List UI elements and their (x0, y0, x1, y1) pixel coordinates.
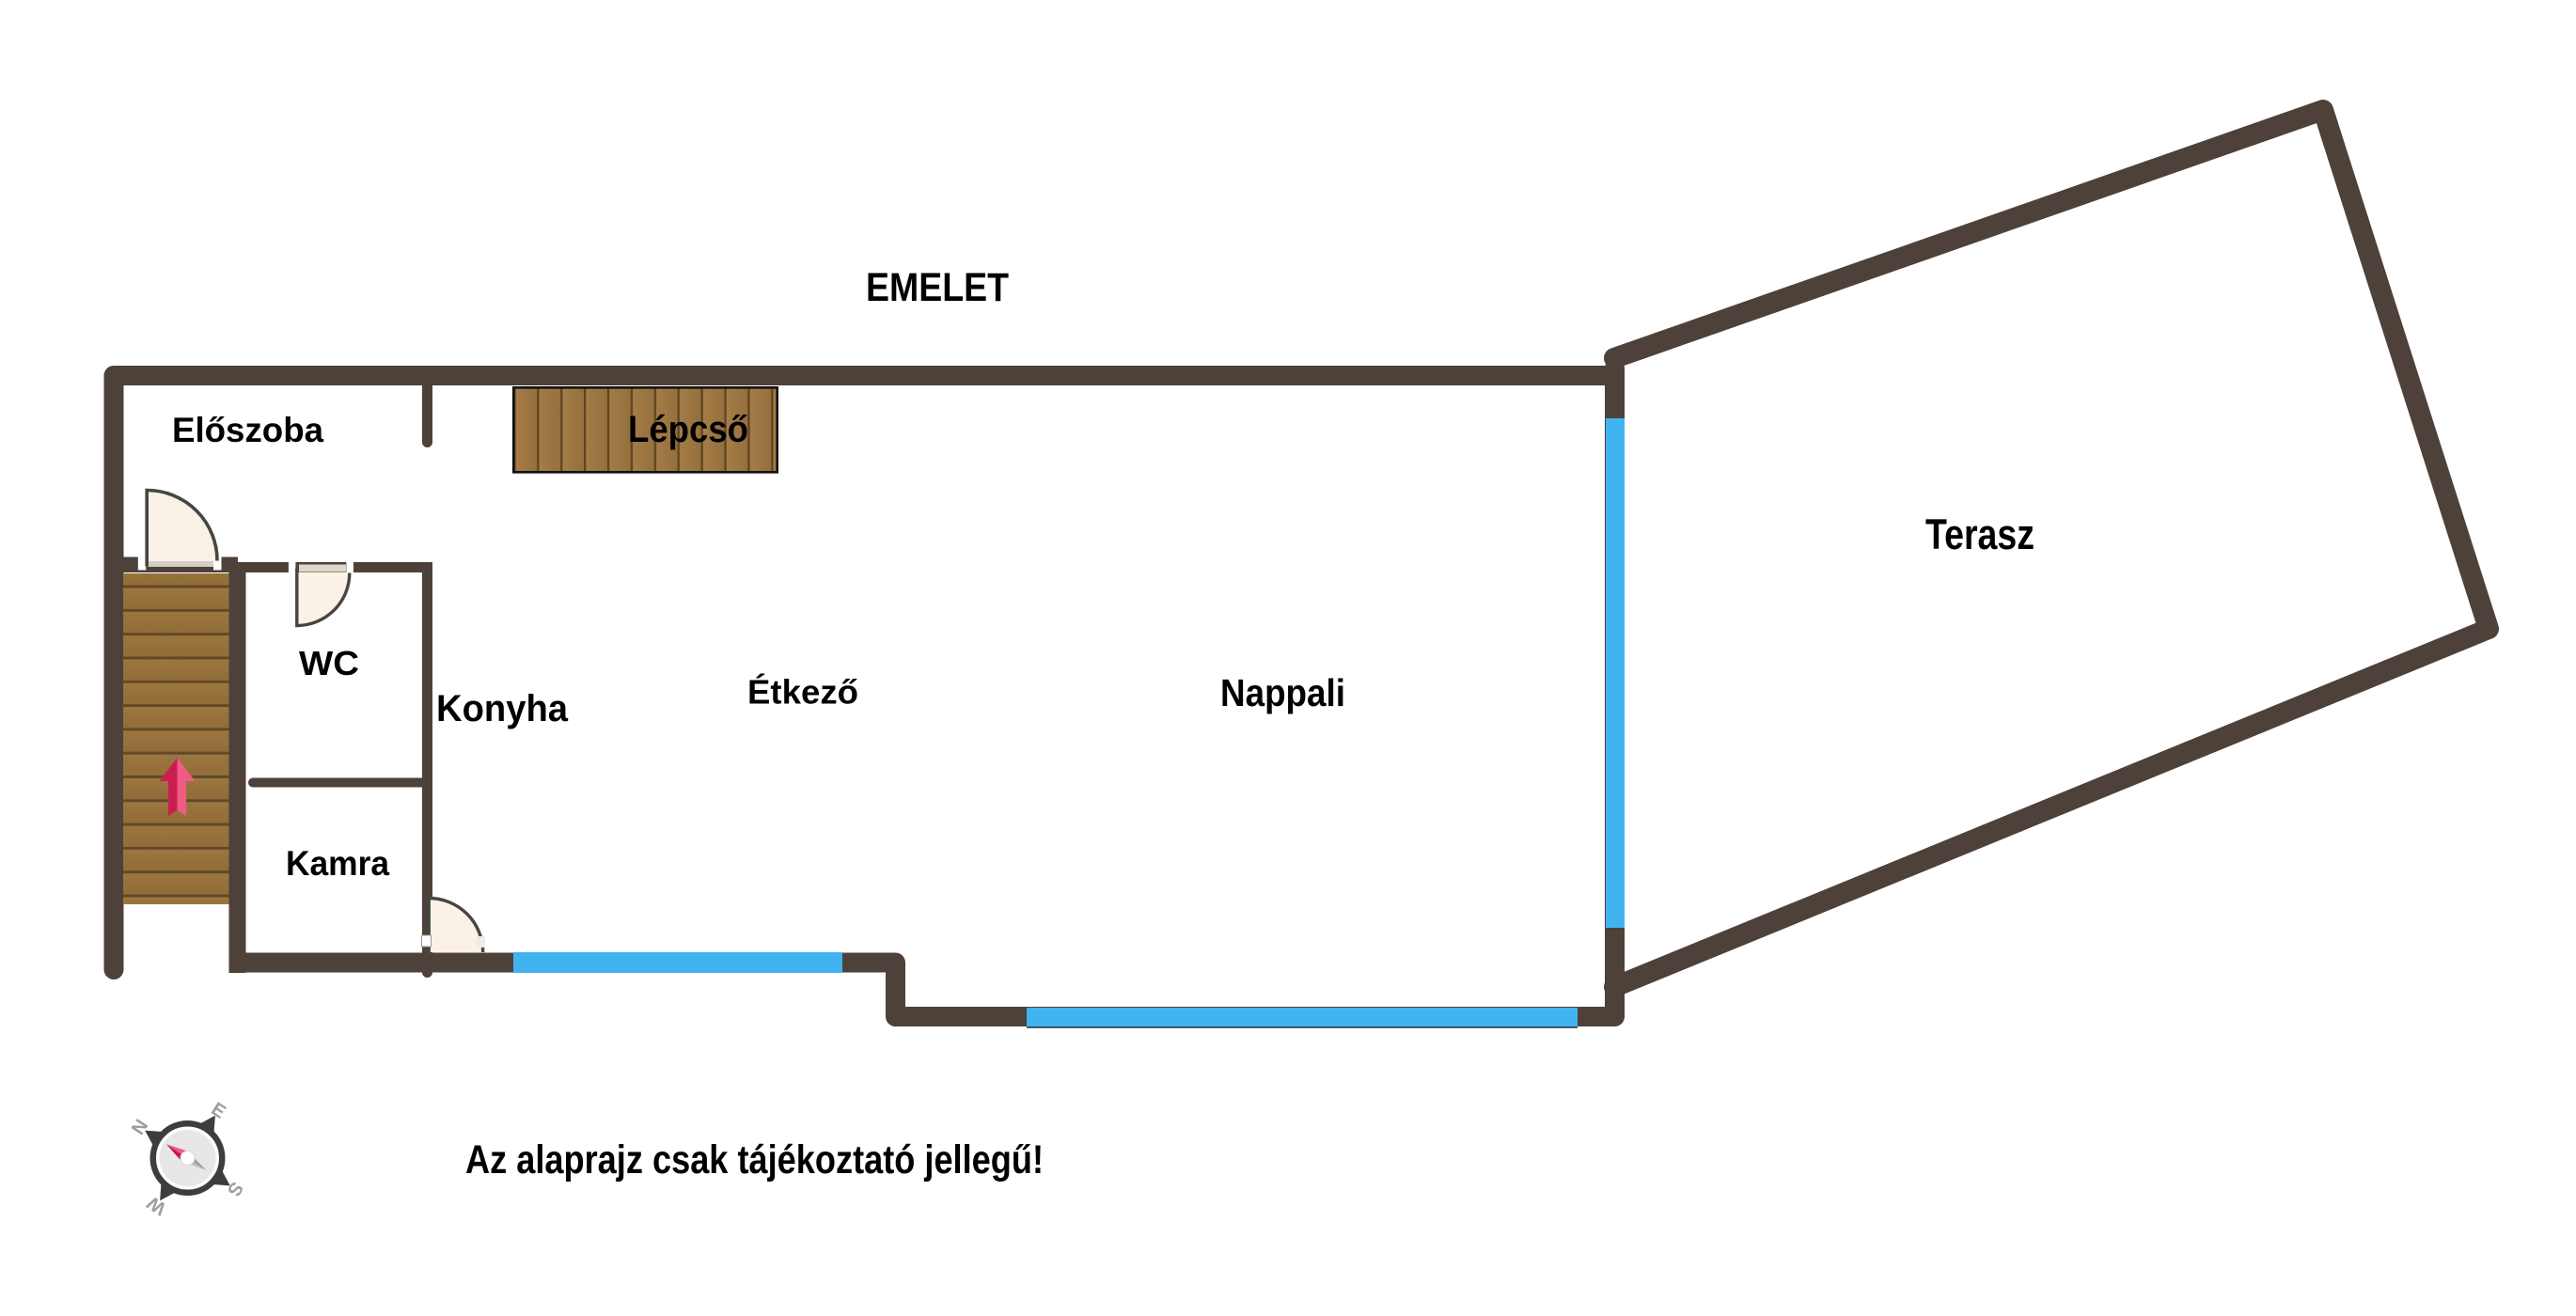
svg-text:Kamra: Kamra (286, 844, 389, 883)
svg-text:Terasz: Terasz (1925, 510, 2034, 558)
svg-text:Az alaprajz csak tájékoztató j: Az alaprajz csak tájékoztató jellegű! (465, 1137, 1044, 1183)
svg-text:Előszoba: Előszoba (172, 411, 323, 449)
svg-text:Lépcső: Lépcső (628, 409, 748, 450)
svg-text:WC: WC (299, 644, 359, 682)
svg-text:Konyha: Konyha (436, 688, 569, 729)
svg-text:EMELET: EMELET (866, 265, 1009, 310)
svg-text:Nappali: Nappali (1220, 671, 1345, 714)
svg-text:Étkező: Étkező (747, 673, 858, 712)
